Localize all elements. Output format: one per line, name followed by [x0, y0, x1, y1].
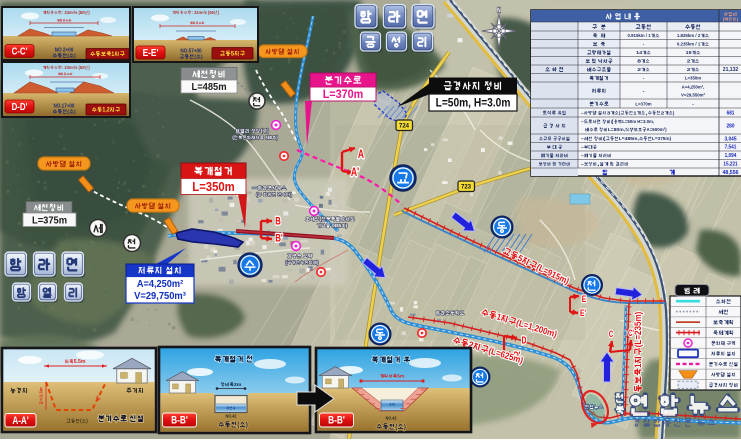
- svg-text:7,541: 7,541: [725, 145, 737, 151]
- svg-text:E-E': E-E': [143, 48, 159, 59]
- svg-text:2: 2: [661, 110, 665, 116]
- svg-text:E': E': [580, 308, 586, 318]
- svg-text:L=485m,: L=485m,: [619, 136, 640, 142]
- svg-text:L=50m H=3.0m,: L=50m H=3.0m,: [622, 119, 654, 125]
- svg-text:1,094: 1,094: [725, 153, 737, 159]
- svg-text:L=375m): L=375m): [652, 136, 671, 142]
- svg-text:48,556: 48,556: [722, 170, 738, 176]
- svg-text:(: (: [261, 129, 263, 135]
- svg-text:,: ,: [645, 111, 647, 116]
- svg-text:1.825km / 2: 1.825km / 2: [677, 33, 701, 39]
- svg-text:2m: 2m: [234, 382, 242, 388]
- svg-text:L=80m,: L=80m,: [608, 127, 625, 133]
- svg-text:85: 85: [336, 223, 341, 229]
- svg-text:2.5m: 2.5m: [38, 387, 43, 397]
- svg-text:723: 723: [461, 183, 471, 190]
- svg-text:NO.57+00: NO.57+00: [180, 48, 201, 54]
- svg-text:B': B': [275, 233, 283, 245]
- svg-text:3: 3: [607, 110, 611, 116]
- svg-text:2: 2: [687, 59, 691, 65]
- svg-text:(: (: [320, 217, 322, 223]
- svg-text:NO.17+00: NO.17+00: [54, 103, 75, 109]
- svg-text:N: N: [497, 6, 501, 14]
- svg-text:1: 1: [633, 110, 637, 116]
- svg-text:2: 2: [637, 67, 641, 73]
- svg-text:A=4,250m²,: A=4,250m²,: [682, 85, 705, 91]
- svg-text:21,132: 21,132: [723, 67, 738, 73]
- svg-text:A: A: [358, 147, 364, 161]
- svg-text:5.5m: 5.5m: [74, 359, 86, 365]
- svg-text:A-A': A-A': [12, 415, 28, 427]
- svg-text:: 23m³/s (50: : 23m³/s (50: [62, 65, 85, 70]
- svg-text:A': A': [351, 165, 359, 179]
- svg-text:L=350m: L=350m: [192, 180, 234, 194]
- svg-text:(: (: [67, 53, 69, 59]
- svg-text:15: 15: [686, 50, 692, 56]
- svg-text:5m: 5m: [397, 374, 405, 380]
- svg-text:1: 1: [633, 364, 643, 368]
- svg-text:724: 724: [399, 122, 409, 129]
- svg-text:0.235km / 1: 0.235km / 1: [677, 42, 701, 48]
- svg-text:L=375m: L=375m: [32, 215, 67, 226]
- svg-text:2: 2: [687, 67, 691, 73]
- svg-text:L=370m: L=370m: [323, 87, 364, 101]
- svg-text:V=29,750m³: V=29,750m³: [134, 291, 186, 302]
- svg-text:NO.42: NO.42: [385, 416, 396, 422]
- svg-text:5: 5: [231, 50, 235, 57]
- svg-text:): ): [201, 54, 203, 60]
- svg-text:(: (: [194, 54, 196, 60]
- svg-text:C: C: [609, 329, 614, 339]
- svg-text:280: 280: [726, 124, 734, 130]
- svg-text:1,2: 1,2: [102, 108, 110, 114]
- svg-text:B-B': B-B': [328, 415, 345, 427]
- svg-text:L=350m: L=350m: [685, 76, 701, 82]
- svg-text:A=600m²): A=600m²): [647, 127, 667, 133]
- svg-text:0.915km / 1: 0.915km / 1: [628, 33, 651, 39]
- svg-text:8: 8: [269, 135, 272, 141]
- svg-text:): ): [86, 419, 88, 425]
- svg-text:B: B: [275, 216, 281, 228]
- svg-text:): ): [246, 422, 248, 429]
- svg-text:(L=235m): (L=235m): [633, 312, 643, 348]
- svg-text:L=485m: L=485m: [191, 82, 226, 93]
- svg-text:B-B': B-B': [171, 415, 188, 427]
- svg-text:): ): [267, 129, 269, 135]
- svg-text:A=4,250m²: A=4,250m²: [137, 279, 184, 290]
- svg-text:8: 8: [637, 59, 641, 65]
- svg-text:D-D': D-D': [12, 102, 28, 113]
- svg-text:C-C': C-C': [12, 46, 28, 57]
- svg-text:): ): [74, 53, 76, 59]
- svg-text:3,045: 3,045: [724, 136, 736, 142]
- svg-text:15,221: 15,221: [723, 162, 737, 168]
- svg-text:): ): [404, 424, 406, 431]
- svg-text:: 31m³/s (50: : 31m³/s (50: [191, 10, 214, 15]
- svg-text:681: 681: [727, 111, 735, 117]
- svg-text:): ): [74, 109, 76, 115]
- svg-text:(: (: [67, 109, 69, 115]
- svg-text:V=29,550m³: V=29,550m³: [681, 92, 705, 98]
- svg-text:NO.42: NO.42: [225, 414, 236, 420]
- svg-text:D: D: [521, 335, 526, 346]
- svg-text:: 23m³/s (50: : 23m³/s (50: [62, 10, 85, 15]
- svg-text:L=50m, H=3.0m: L=50m, H=3.0m: [436, 98, 511, 110]
- svg-text:14: 14: [636, 50, 642, 56]
- svg-text:E: E: [582, 294, 587, 304]
- svg-text:NO 2+00: NO 2+00: [55, 47, 74, 53]
- svg-text:L=370m: L=370m: [635, 101, 651, 107]
